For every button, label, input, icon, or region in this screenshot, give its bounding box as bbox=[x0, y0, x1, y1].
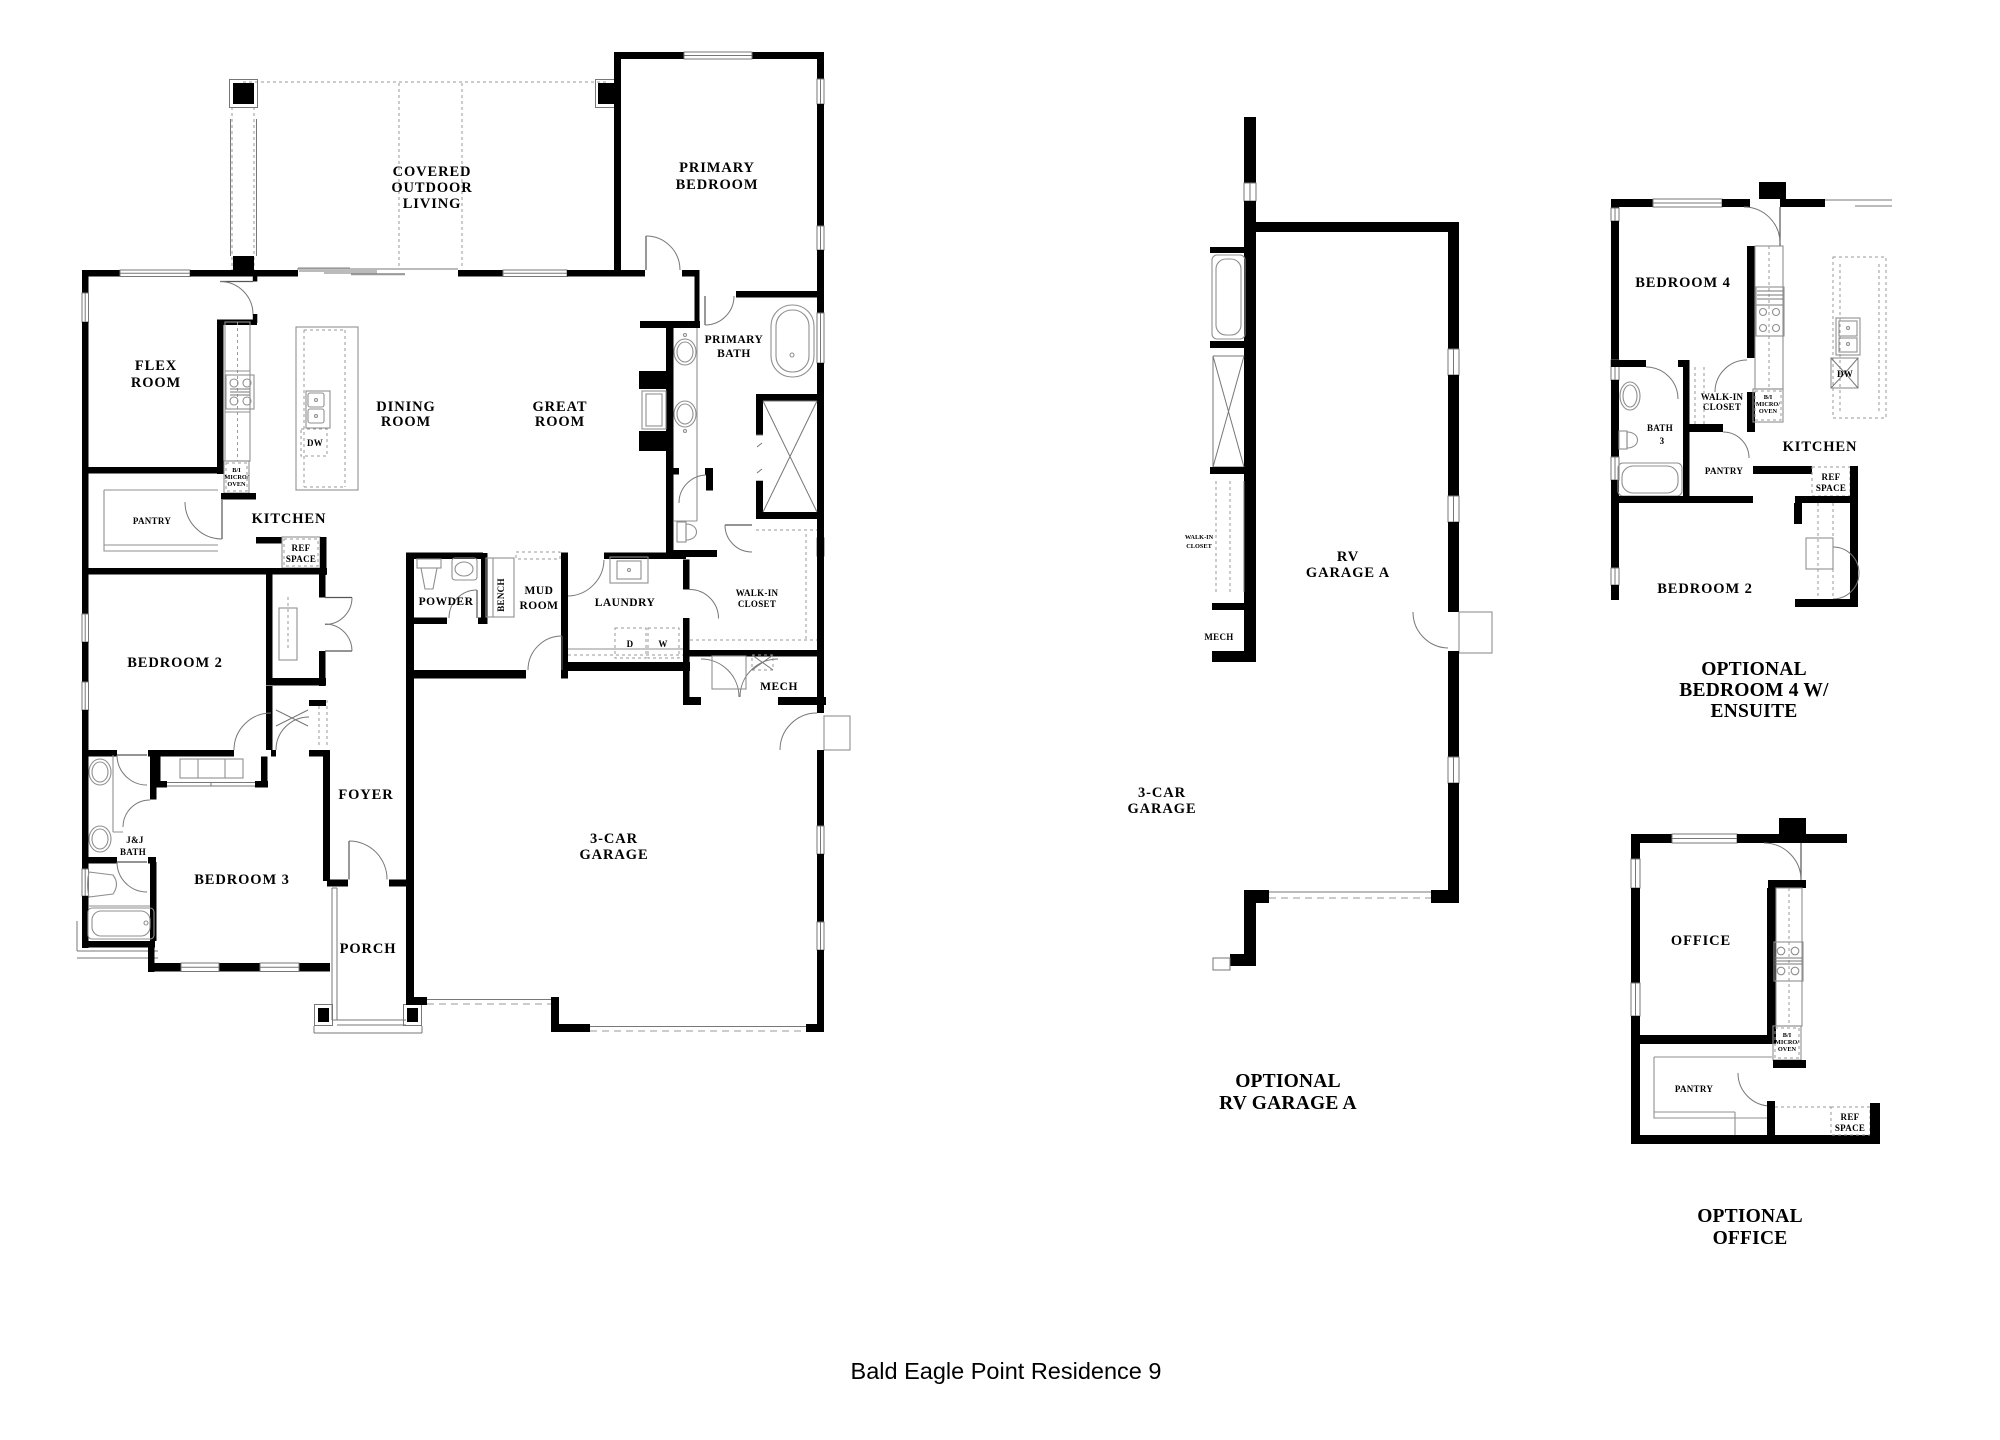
svg-text:FOYER: FOYER bbox=[338, 787, 393, 803]
svg-text:ROOM: ROOM bbox=[381, 414, 431, 430]
svg-text:3-CAR: 3-CAR bbox=[1138, 785, 1186, 801]
svg-text:BEDROOM 2: BEDROOM 2 bbox=[1657, 581, 1753, 597]
svg-text:PRIMARY: PRIMARY bbox=[679, 160, 755, 176]
svg-text:CLOSET: CLOSET bbox=[738, 599, 776, 609]
svg-text:MECH: MECH bbox=[760, 681, 798, 693]
svg-text:SPACE: SPACE bbox=[1835, 1123, 1865, 1133]
svg-text:MICRO/: MICRO/ bbox=[1775, 1039, 1799, 1046]
svg-text:BATH: BATH bbox=[120, 847, 146, 857]
svg-text:ROOM: ROOM bbox=[535, 414, 585, 430]
svg-text:J&J: J&J bbox=[126, 835, 144, 845]
svg-text:KITCHEN: KITCHEN bbox=[252, 511, 327, 527]
svg-text:OFFICE: OFFICE bbox=[1671, 933, 1731, 949]
svg-text:PANTRY: PANTRY bbox=[133, 516, 172, 526]
svg-text:CLOSET: CLOSET bbox=[1703, 402, 1741, 412]
svg-text:BEDROOM 2: BEDROOM 2 bbox=[127, 655, 223, 671]
svg-text:REF: REF bbox=[292, 543, 311, 553]
svg-text:MICRO/: MICRO/ bbox=[1756, 401, 1780, 408]
svg-text:DW: DW bbox=[1837, 369, 1853, 379]
svg-text:B/I: B/I bbox=[1783, 1032, 1792, 1039]
svg-text:OVEN: OVEN bbox=[227, 481, 246, 488]
svg-text:MUD: MUD bbox=[525, 585, 554, 597]
svg-text:MICRO/: MICRO/ bbox=[224, 474, 248, 481]
svg-text:OPTIONAL: OPTIONAL bbox=[1701, 659, 1807, 680]
svg-text:BATH: BATH bbox=[1647, 423, 1673, 433]
svg-text:ENSUITE: ENSUITE bbox=[1710, 701, 1797, 722]
svg-text:SPACE: SPACE bbox=[1816, 483, 1846, 493]
svg-text:BEDROOM: BEDROOM bbox=[676, 177, 759, 193]
svg-text:KITCHEN: KITCHEN bbox=[1783, 439, 1858, 455]
svg-text:CLOSET: CLOSET bbox=[1186, 543, 1212, 550]
svg-text:BEDROOM 4: BEDROOM 4 bbox=[1635, 275, 1731, 291]
svg-text:WALK-IN: WALK-IN bbox=[1185, 534, 1214, 541]
svg-text:PORCH: PORCH bbox=[340, 941, 397, 957]
svg-text:OUTDOOR: OUTDOOR bbox=[391, 180, 472, 196]
svg-text:GREAT: GREAT bbox=[533, 399, 588, 415]
svg-text:MECH: MECH bbox=[1204, 632, 1233, 642]
svg-text:LIVING: LIVING bbox=[403, 196, 462, 212]
svg-text:DW: DW bbox=[307, 438, 323, 448]
svg-text:BENCH: BENCH bbox=[496, 578, 506, 612]
svg-text:PRIMARY: PRIMARY bbox=[705, 334, 764, 346]
svg-text:REF: REF bbox=[1841, 1112, 1860, 1122]
svg-text:D: D bbox=[627, 639, 634, 649]
svg-text:POWDER: POWDER bbox=[419, 596, 474, 608]
svg-text:PANTRY: PANTRY bbox=[1705, 466, 1744, 476]
svg-text:DINING: DINING bbox=[376, 399, 435, 415]
svg-text:W: W bbox=[658, 639, 667, 649]
svg-text:3: 3 bbox=[1660, 436, 1665, 446]
svg-text:OFFICE: OFFICE bbox=[1713, 1228, 1788, 1249]
svg-text:Bald Eagle Point Residence 9: Bald Eagle Point Residence 9 bbox=[851, 1358, 1162, 1384]
svg-text:SPACE: SPACE bbox=[286, 554, 316, 564]
svg-text:RV GARAGE A: RV GARAGE A bbox=[1219, 1093, 1357, 1114]
svg-text:PANTRY: PANTRY bbox=[1675, 1084, 1714, 1094]
svg-text:GARAGE: GARAGE bbox=[1127, 801, 1196, 817]
svg-text:3-CAR: 3-CAR bbox=[590, 831, 638, 847]
svg-text:LAUNDRY: LAUNDRY bbox=[595, 597, 656, 609]
svg-text:RV: RV bbox=[1337, 549, 1359, 565]
svg-text:OVEN: OVEN bbox=[1778, 1046, 1797, 1053]
svg-text:GARAGE A: GARAGE A bbox=[1306, 565, 1390, 581]
svg-text:OPTIONAL: OPTIONAL bbox=[1235, 1071, 1341, 1092]
svg-text:GARAGE: GARAGE bbox=[579, 847, 648, 863]
svg-text:WALK-IN: WALK-IN bbox=[736, 588, 779, 598]
svg-text:WALK-IN: WALK-IN bbox=[1701, 392, 1744, 402]
svg-text:BATH: BATH bbox=[717, 348, 751, 360]
svg-text:OPTIONAL: OPTIONAL bbox=[1697, 1206, 1803, 1227]
svg-text:ROOM: ROOM bbox=[519, 600, 558, 612]
svg-text:B/I: B/I bbox=[1764, 394, 1773, 401]
svg-text:ROOM: ROOM bbox=[131, 375, 181, 391]
svg-text:BEDROOM 3: BEDROOM 3 bbox=[194, 872, 290, 888]
svg-text:BEDROOM 4 W/: BEDROOM 4 W/ bbox=[1679, 680, 1829, 701]
svg-text:OVEN: OVEN bbox=[1759, 408, 1778, 415]
svg-text:FLEX: FLEX bbox=[135, 358, 177, 374]
svg-text:COVERED: COVERED bbox=[393, 164, 472, 180]
svg-text:B/I: B/I bbox=[232, 467, 241, 474]
svg-text:REF: REF bbox=[1822, 472, 1841, 482]
